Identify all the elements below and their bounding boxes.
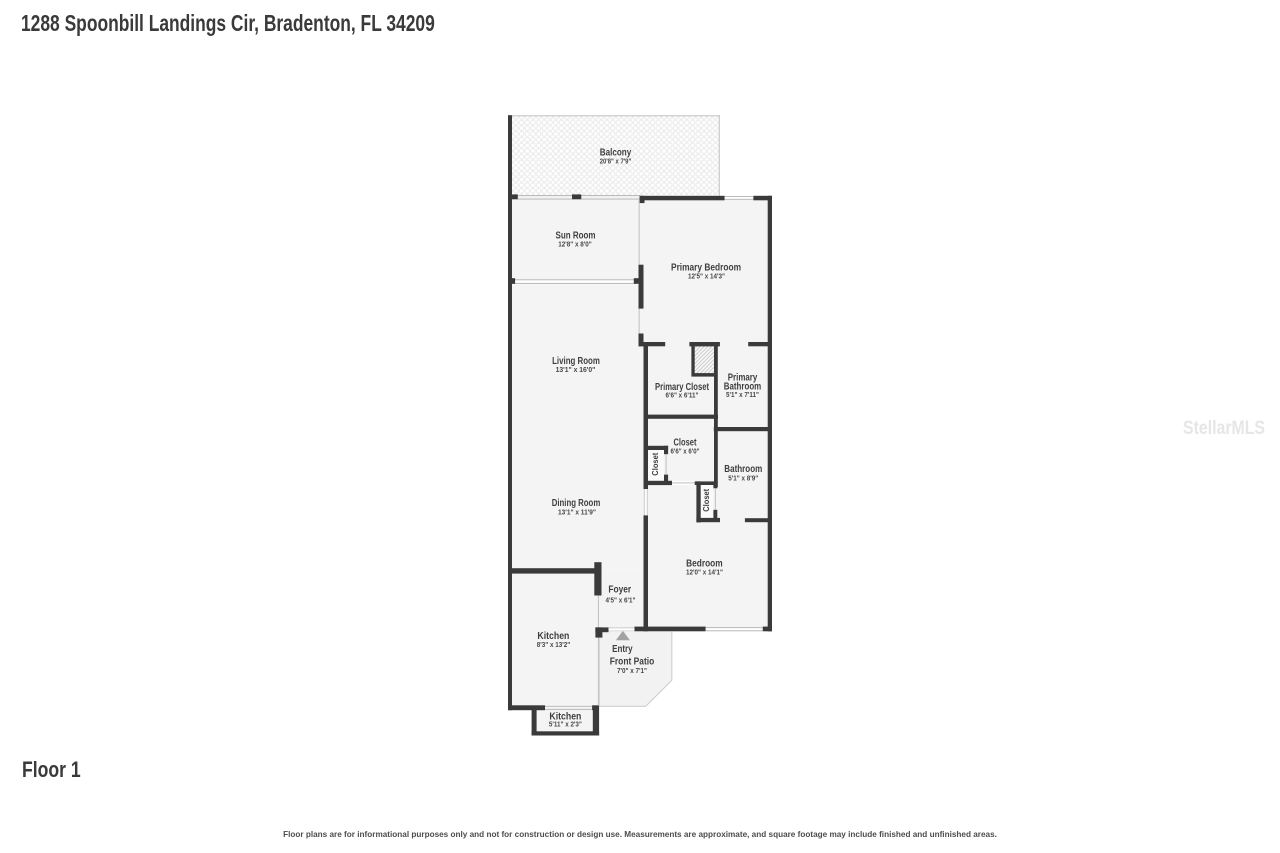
svg-text:Living Room: Living Room [552,356,600,367]
svg-text:5'1" x 7'11": 5'1" x 7'11" [726,392,759,399]
svg-text:Entry: Entry [612,644,633,655]
svg-text:Sun Room: Sun Room [556,231,596,242]
svg-text:12'0" x 14'1": 12'0" x 14'1" [686,570,723,577]
svg-text:Bathroom: Bathroom [724,382,762,393]
svg-text:12'8" x 8'0": 12'8" x 8'0" [558,242,591,249]
svg-text:20'8" x 7'9": 20'8" x 7'9" [600,158,632,165]
svg-text:8'3" x 13'2": 8'3" x 13'2" [537,642,571,649]
svg-text:Bedroom: Bedroom [686,559,723,570]
svg-text:Bathroom: Bathroom [724,464,762,475]
svg-text:Closet: Closet [674,438,698,449]
svg-text:5'1" x 8'9": 5'1" x 8'9" [728,476,758,483]
svg-text:Dining Room: Dining Room [552,498,601,509]
svg-text:Foyer: Foyer [608,585,631,596]
svg-text:5'11" x 2'3": 5'11" x 2'3" [549,721,582,728]
svg-text:Balcony: Balcony [600,147,632,158]
svg-text:Closet: Closet [701,489,711,512]
svg-text:6'6" x 6'0": 6'6" x 6'0" [671,449,700,456]
svg-text:7'0" x 7'1": 7'0" x 7'1" [617,668,647,675]
svg-text:Front Patio: Front Patio [610,656,655,667]
svg-text:4'5" x 6'1": 4'5" x 6'1" [606,598,636,605]
svg-text:Primary Bedroom: Primary Bedroom [671,262,741,273]
svg-text:13'1" x 11'9": 13'1" x 11'9" [558,509,596,516]
svg-text:12'5" x 14'3": 12'5" x 14'3" [688,273,725,280]
svg-text:Kitchen: Kitchen [537,631,569,642]
svg-text:Closet: Closet [650,453,660,476]
svg-text:6'6" x 6'11": 6'6" x 6'11" [666,392,699,399]
svg-text:13'1" x 16'0": 13'1" x 16'0" [556,367,596,374]
